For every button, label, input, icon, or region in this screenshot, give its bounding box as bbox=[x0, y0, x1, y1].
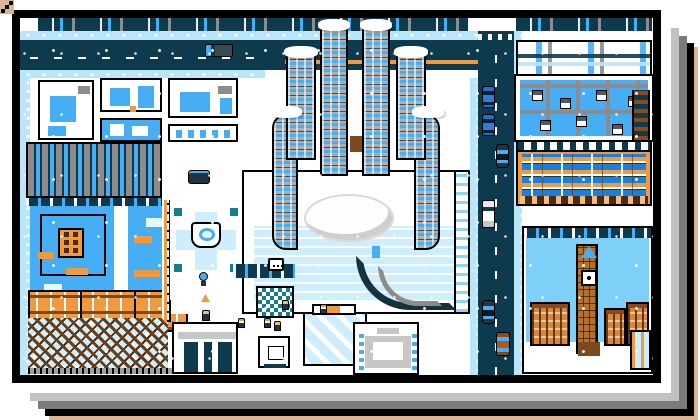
game-screen bbox=[0, 0, 700, 420]
corner-step bbox=[5, 5, 9, 9]
window-frame bbox=[12, 10, 661, 383]
corner-step bbox=[1, 9, 5, 13]
corner-step bbox=[9, 1, 13, 5]
